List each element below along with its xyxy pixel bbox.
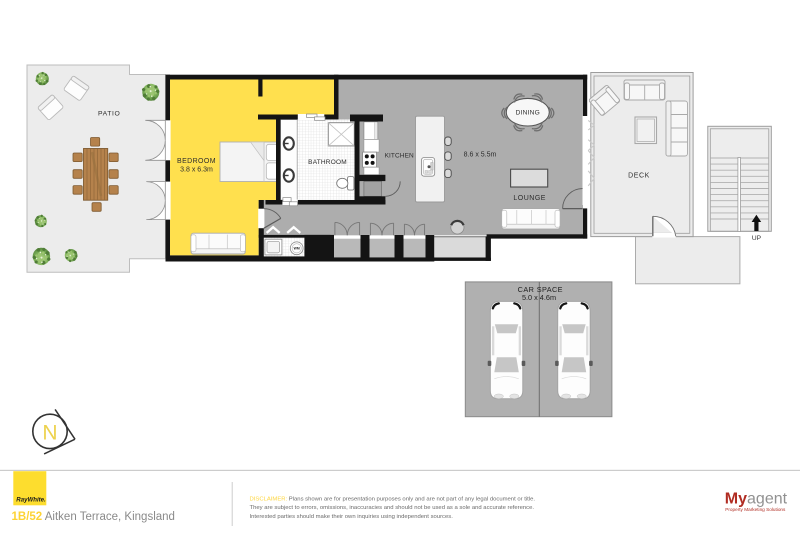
svg-text:N: N — [42, 421, 57, 444]
svg-text:Interested parties should make: Interested parties should make their own… — [250, 514, 454, 520]
svg-text:8.6 x 5.5m: 8.6 x 5.5m — [464, 152, 497, 159]
svg-text:DISCLAIMER: Plans shown are fo: DISCLAIMER: Plans shown are for presenta… — [250, 496, 536, 502]
svg-text:DECK: DECK — [628, 173, 650, 180]
svg-text:They are subject to errors, om: They are subject to errors, omissions, i… — [250, 505, 535, 511]
svg-text:WM: WM — [294, 247, 300, 251]
svg-text:Myagent: Myagent — [725, 491, 788, 508]
svg-text:LOUNGE: LOUNGE — [513, 195, 546, 202]
svg-text:BATHROOM: BATHROOM — [308, 159, 347, 166]
svg-text:RayWhite.: RayWhite. — [16, 497, 46, 504]
svg-text:PATIO: PATIO — [98, 110, 120, 117]
svg-text:KITCHEN: KITCHEN — [385, 153, 414, 160]
svg-text:1B/52 Aitken Terrace, Kingslan: 1B/52 Aitken Terrace, Kingsland — [12, 511, 175, 523]
svg-text:Property Marketing Solutions: Property Marketing Solutions — [725, 507, 786, 512]
svg-text:5.0 x 4.6m: 5.0 x 4.6m — [522, 293, 556, 302]
svg-text:BEDROOM: BEDROOM — [177, 158, 216, 165]
svg-text:3.8 x 6.3m: 3.8 x 6.3m — [180, 167, 213, 174]
svg-text:DINING: DINING — [516, 110, 540, 117]
svg-text:UP: UP — [752, 235, 762, 242]
